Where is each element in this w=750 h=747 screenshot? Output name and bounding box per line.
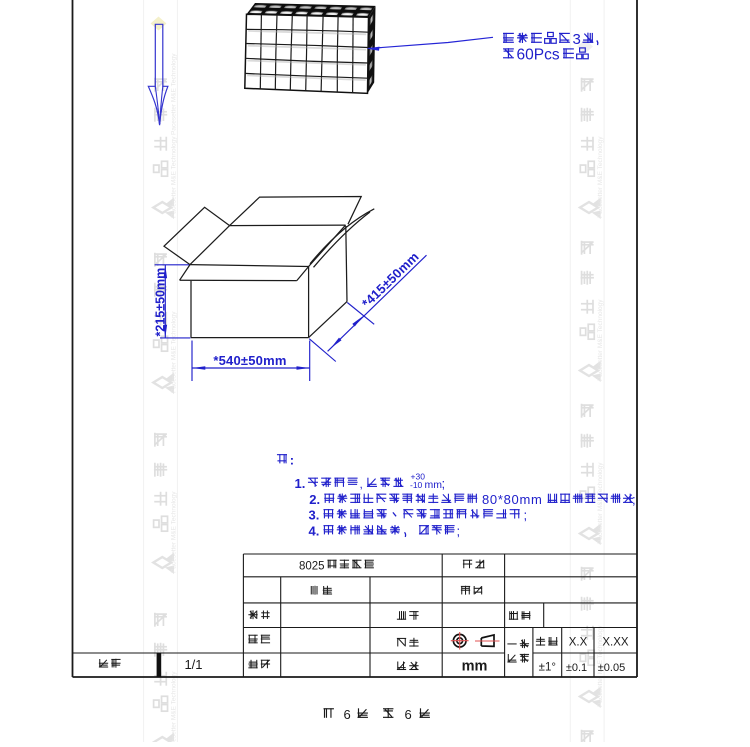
svg-text:,: , <box>360 477 363 491</box>
svg-text:±0.05: ±0.05 <box>598 662 625 674</box>
svg-text:Pacesetter M&E Technology: Pacesetter M&E Technology <box>171 491 178 573</box>
svg-text:*540±50mm: *540±50mm <box>213 353 286 368</box>
svg-text:X.X: X.X <box>569 636 588 648</box>
svg-text:3: 3 <box>573 31 581 48</box>
svg-text:Pacesetter M&E Technology: Pacesetter M&E Technology <box>597 136 604 218</box>
svg-text:±1°: ±1° <box>539 662 556 674</box>
svg-text:1/1: 1/1 <box>184 657 202 672</box>
svg-text:;: ; <box>457 524 461 539</box>
svg-text:;: ; <box>442 476 446 491</box>
svg-text:±0.1: ±0.1 <box>566 662 587 674</box>
svg-text::: : <box>290 453 294 468</box>
svg-text:;: ; <box>524 508 528 523</box>
svg-text:3.: 3. <box>309 508 320 523</box>
svg-text:2.: 2. <box>309 492 320 507</box>
svg-text:Pacesetter M&E Technology: Pacesetter M&E Technology <box>597 462 604 544</box>
svg-text:8025: 8025 <box>299 560 325 572</box>
svg-text:60Pcs: 60Pcs <box>517 47 560 64</box>
svg-text:Pacesetter M&E Technology: Pacesetter M&E Technology <box>171 53 178 135</box>
svg-text:Pacesetter M&E Technology: Pacesetter M&E Technology <box>171 671 178 742</box>
svg-text:Pacesetter M&E Technology: Pacesetter M&E Technology <box>171 311 178 393</box>
svg-text:-10: -10 <box>410 480 423 490</box>
svg-text:*215±50mm: *215±50mm <box>154 268 168 337</box>
svg-text:Pacesetter M&E Technology: Pacesetter M&E Technology <box>597 299 604 381</box>
svg-text:6: 6 <box>405 707 412 722</box>
svg-text:4.: 4. <box>309 524 320 539</box>
svg-text:Pacesetter M&E Technology: Pacesetter M&E Technology <box>171 136 178 218</box>
svg-text:mm: mm <box>462 658 488 674</box>
svg-text:80*80mm: 80*80mm <box>482 492 543 507</box>
svg-text:1.: 1. <box>295 476 306 491</box>
svg-text:6: 6 <box>344 707 351 722</box>
svg-text:;: ; <box>632 492 636 507</box>
svg-text:X.XX: X.XX <box>602 636 629 648</box>
svg-text:mm: mm <box>425 479 443 491</box>
